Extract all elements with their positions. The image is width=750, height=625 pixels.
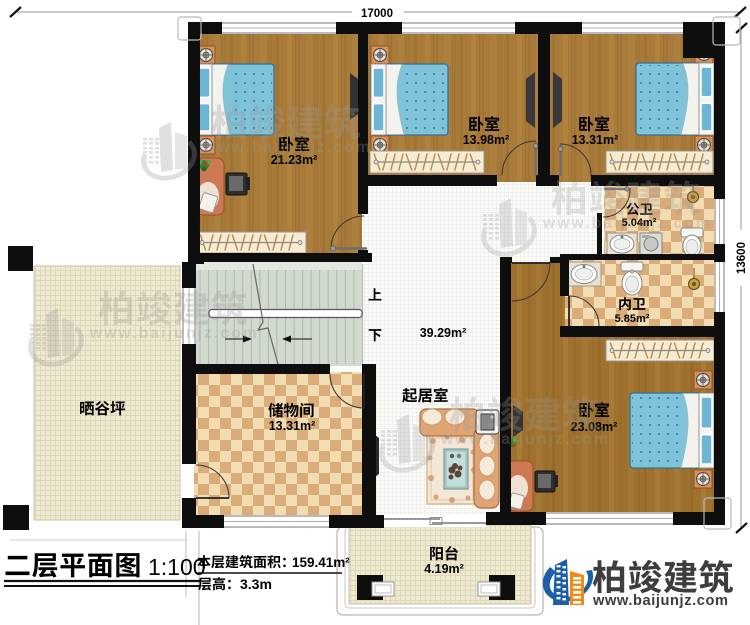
svg-text:13.98m²: 13.98m² [463, 133, 510, 147]
svg-text:www.baijunjz.com: www.baijunjz.com [542, 215, 712, 232]
svg-text:13600: 13600 [736, 242, 748, 274]
svg-text:3.3m: 3.3m [240, 576, 272, 592]
svg-text:www.baijunjz.com: www.baijunjz.com [202, 139, 372, 156]
svg-text:159.41m²: 159.41m² [292, 555, 350, 570]
svg-text:13.31m²: 13.31m² [572, 133, 619, 147]
svg-text:17000: 17000 [361, 8, 393, 20]
svg-text:www.baijunjz.com: www.baijunjz.com [440, 431, 610, 448]
svg-text:39.29m²: 39.29m² [420, 326, 467, 340]
svg-text:www.baijunjz.com: www.baijunjz.com [592, 593, 729, 609]
svg-text:13.31m²: 13.31m² [269, 419, 316, 433]
svg-text:www.baijunjz.com: www.baijunjz.com [89, 325, 259, 342]
svg-text:5.85m²: 5.85m² [615, 313, 650, 325]
svg-text:4.19m²: 4.19m² [424, 562, 464, 576]
svg-text:1:100: 1:100 [148, 554, 206, 580]
